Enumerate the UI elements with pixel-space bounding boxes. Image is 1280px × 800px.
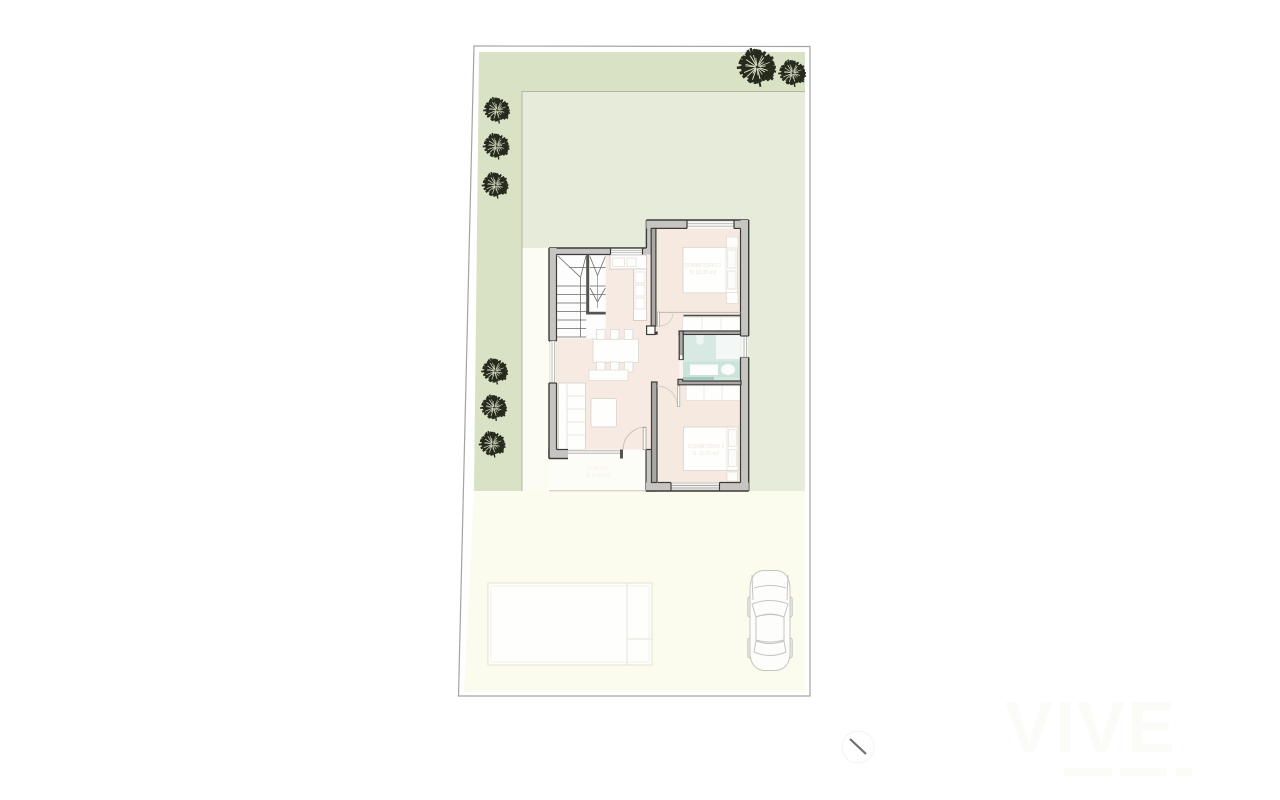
svg-text:PORCHE: PORCHE xyxy=(587,466,609,472)
svg-text:DORMITORIO 1: DORMITORIO 1 xyxy=(688,444,725,450)
svg-text:DORMITORIO 2: DORMITORIO 2 xyxy=(685,263,722,269)
svg-text:VIVE: VIVE xyxy=(1005,688,1177,768)
svg-text:S: 8.90 m2: S: 8.90 m2 xyxy=(586,473,610,479)
svg-text:S: 10.35 m2: S: 10.35 m2 xyxy=(690,270,717,276)
svg-text:S: 11.75 m2: S: 11.75 m2 xyxy=(693,451,720,457)
